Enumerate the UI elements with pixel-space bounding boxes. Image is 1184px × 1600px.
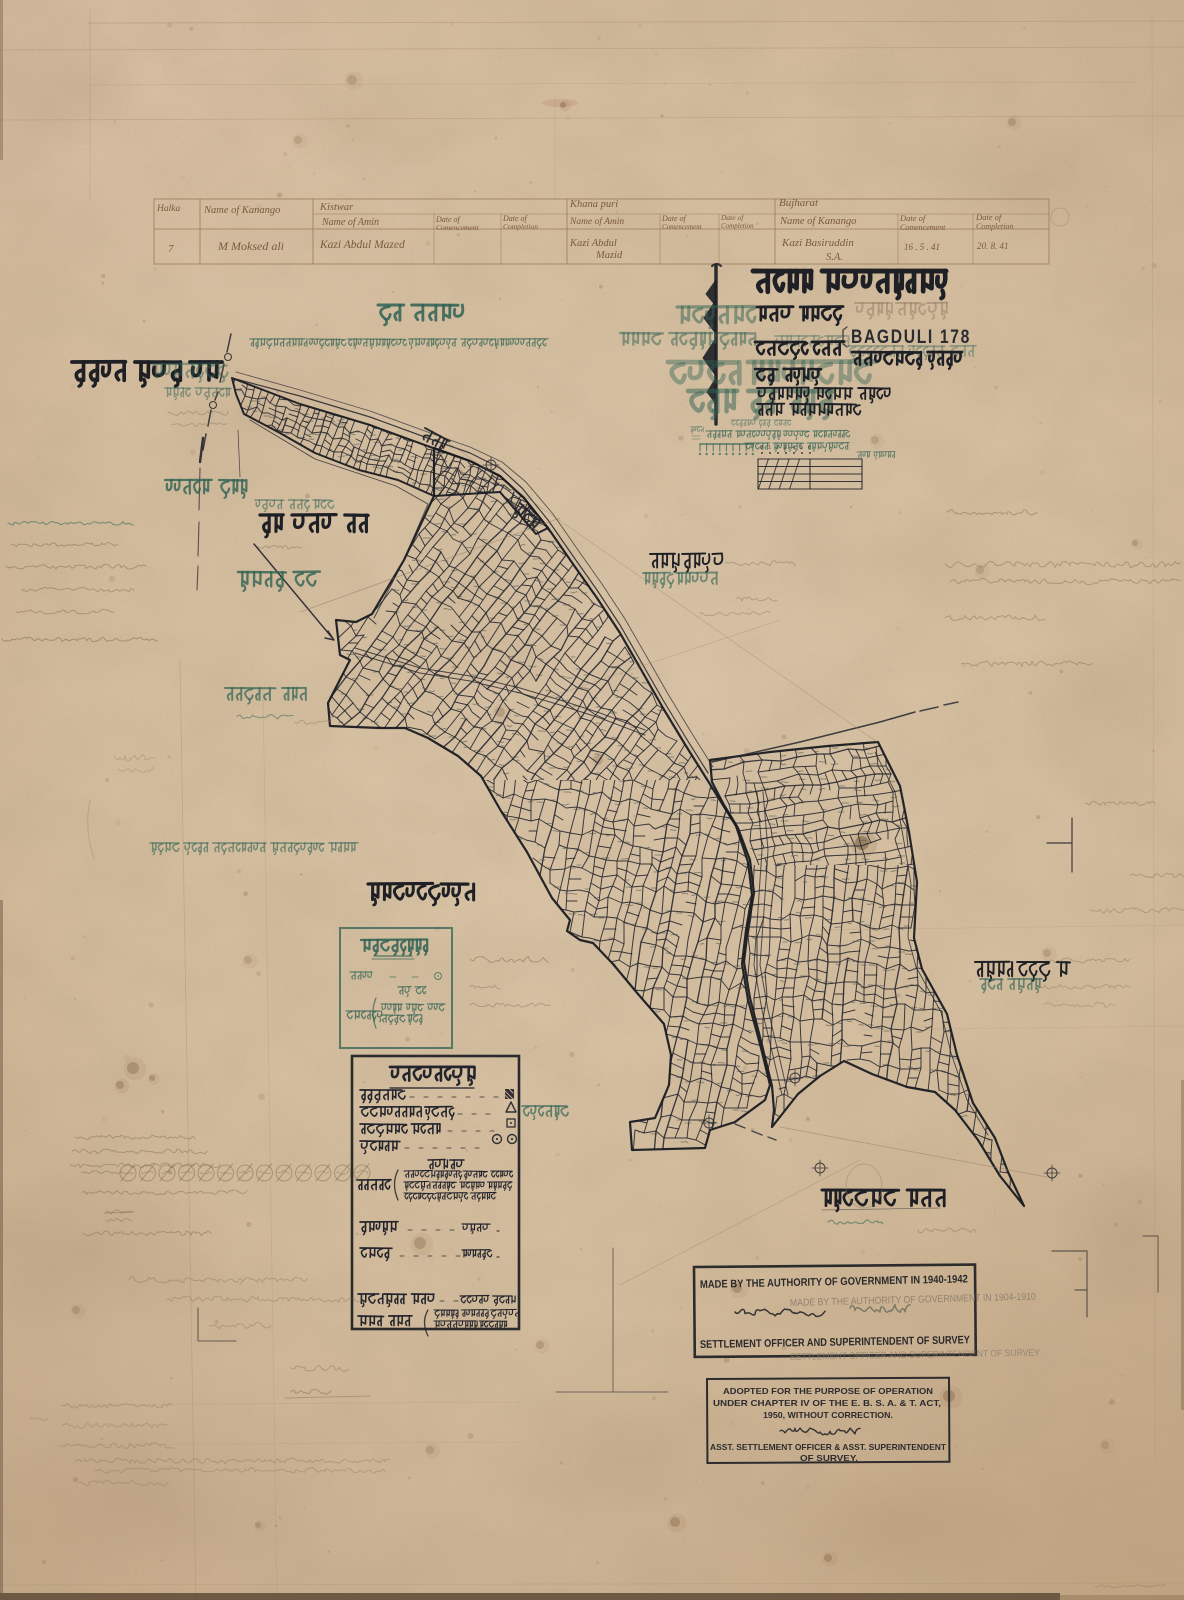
svg-text:Comencement: Comencement [436, 223, 479, 232]
svg-text:Name of Amin: Name of Amin [569, 216, 624, 227]
svg-text:Khana puri: Khana puri [569, 199, 618, 210]
svg-text:7: 7 [168, 243, 174, 255]
svg-text:Date of: Date of [661, 214, 688, 223]
svg-text:Name of Kanango: Name of Kanango [779, 216, 856, 227]
svg-text:Comencement: Comencement [900, 223, 946, 232]
svg-text:Halka: Halka [156, 204, 180, 214]
svg-text:Kazi Abdul Mazed: Kazi Abdul Mazed [319, 239, 405, 251]
svg-text:S.A.: S.A. [826, 252, 843, 263]
svg-text:ADOPTED FOR THE PURPOSE OF OPE: ADOPTED FOR THE PURPOSE OF OPERATION [723, 1386, 933, 1396]
svg-text:OF SURVEY.: OF SURVEY. [800, 1453, 858, 1463]
svg-text:16 . 5 . 41: 16 . 5 . 41 [904, 242, 940, 252]
svg-text:Mazid: Mazid [595, 250, 623, 261]
svg-text:20. 8. 41: 20. 8. 41 [977, 241, 1009, 251]
svg-text:M Moksed ali: M Moksed ali [217, 239, 284, 253]
svg-text:0: 0 [760, 445, 763, 451]
svg-text:6: 6 [808, 445, 811, 451]
svg-text:3: 3 [784, 445, 787, 451]
svg-text:Kazi Abdul: Kazi Abdul [569, 238, 617, 249]
svg-text:Date of: Date of [720, 213, 744, 222]
svg-text:Date of: Date of [975, 212, 1003, 222]
svg-text:Completion: Completion [503, 222, 538, 231]
svg-text:Completion: Completion [721, 222, 754, 230]
svg-text:Date of: Date of [899, 213, 927, 223]
svg-text:1: 1 [768, 445, 771, 451]
svg-text:Name of Kanango: Name of Kanango [203, 205, 280, 216]
svg-text:Kazi Basiruddin: Kazi Basiruddin [781, 237, 854, 249]
svg-text:Comencement: Comencement [662, 223, 703, 231]
svg-text:Name of Amin: Name of Amin [321, 217, 379, 228]
svg-text:BAGDULI 178: BAGDULI 178 [851, 327, 971, 348]
svg-text:1950, WITHOUT CORRECTION.: 1950, WITHOUT CORRECTION. [763, 1410, 893, 1420]
svg-text:2: 2 [776, 445, 779, 451]
svg-text:Bujharat: Bujharat [779, 197, 819, 209]
svg-text:Completion: Completion [976, 222, 1013, 231]
svg-text:UNDER CHAPTER IV OF THE E. B.: UNDER CHAPTER IV OF THE E. B. S. A. & T.… [713, 1398, 941, 1408]
svg-text:4: 4 [792, 445, 795, 451]
svg-text:Kistwar: Kistwar [319, 202, 354, 213]
svg-text:5: 5 [800, 445, 803, 451]
svg-text:ASST. SETTLEMENT OFFICER & ASS: ASST. SETTLEMENT OFFICER & ASST. SUPERIN… [710, 1442, 947, 1452]
